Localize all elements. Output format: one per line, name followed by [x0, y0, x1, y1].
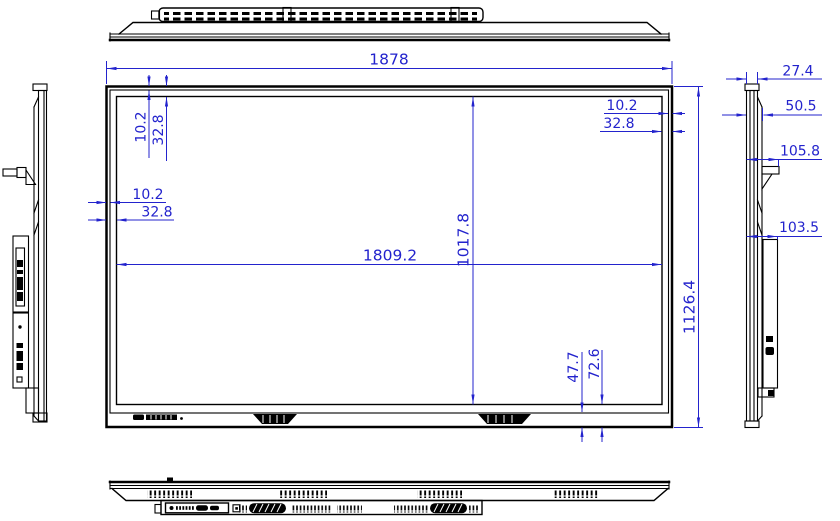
bottom-speaker-right — [430, 503, 467, 513]
dim-bezel-right-glass: 10.2 — [606, 98, 637, 114]
dim-bezel-right-active: 32.8 — [603, 116, 634, 132]
technical-drawing: 1878 1126.4 1809.2 1017.8 10.2 32.8 10.2… — [0, 0, 840, 521]
bottom-vent-group — [280, 491, 327, 499]
right-wall-bracket — [762, 167, 779, 190]
left-panel-body — [39, 91, 47, 422]
dim-overall-width: 1878 — [369, 51, 408, 69]
right-side-view — [745, 84, 779, 428]
dim-bezel-top-glass: 10.2 — [134, 111, 150, 142]
drawing-canvas: 1878 1126.4 1809.2 1017.8 10.2 32.8 10.2… — [0, 0, 840, 521]
dim-bezel-left-active: 32.8 — [141, 205, 172, 221]
dimension-annotations: 1878 1126.4 1809.2 1017.8 10.2 32.8 10.2… — [88, 51, 822, 443]
dim-depth-back-box: 103.5 — [779, 220, 819, 236]
bottom-view — [110, 478, 669, 515]
dim-depth-wall-bracket: 105.8 — [780, 144, 820, 160]
left-lower-box — [13, 313, 29, 388]
left-stylus-holder — [3, 168, 36, 185]
bottom-speaker-left — [249, 503, 286, 513]
left-bottom-bracket — [26, 388, 39, 413]
bottom-vent-group — [147, 491, 192, 499]
left-port-box — [13, 236, 29, 312]
top-view — [110, 8, 669, 42]
right-back-box — [758, 240, 778, 398]
front-speaker-grille-left — [253, 414, 297, 424]
left-top-cap — [33, 84, 47, 91]
dim-depth-front-section: 50.5 — [785, 99, 816, 115]
left-side-view — [3, 84, 47, 422]
bottom-port-panel — [166, 503, 229, 513]
right-panel-body — [747, 91, 758, 422]
bottom-back-box — [155, 501, 482, 515]
top-body-outline — [119, 23, 661, 35]
dim-bezel-top-active: 32.8 — [151, 114, 167, 145]
dim-depth-panel: 27.4 — [782, 64, 813, 80]
right-top-cap — [745, 84, 759, 91]
dim-bezel-bottom-glass: 47.7 — [566, 351, 582, 382]
bottom-vent-group — [417, 491, 462, 499]
dim-bezel-left-glass: 10.2 — [132, 187, 163, 203]
dim-active-height: 1017.8 — [455, 213, 473, 267]
dim-overall-height: 1126.4 — [681, 280, 699, 334]
bottom-vent-group — [553, 491, 598, 499]
front-sensor-bar — [133, 415, 183, 421]
right-bottom-cap — [745, 421, 759, 428]
front-speaker-grille-right — [478, 414, 531, 424]
top-vent-slots — [164, 10, 477, 21]
dim-bezel-bottom-active: 72.6 — [587, 348, 603, 379]
dim-active-width: 1809.2 — [363, 247, 417, 265]
